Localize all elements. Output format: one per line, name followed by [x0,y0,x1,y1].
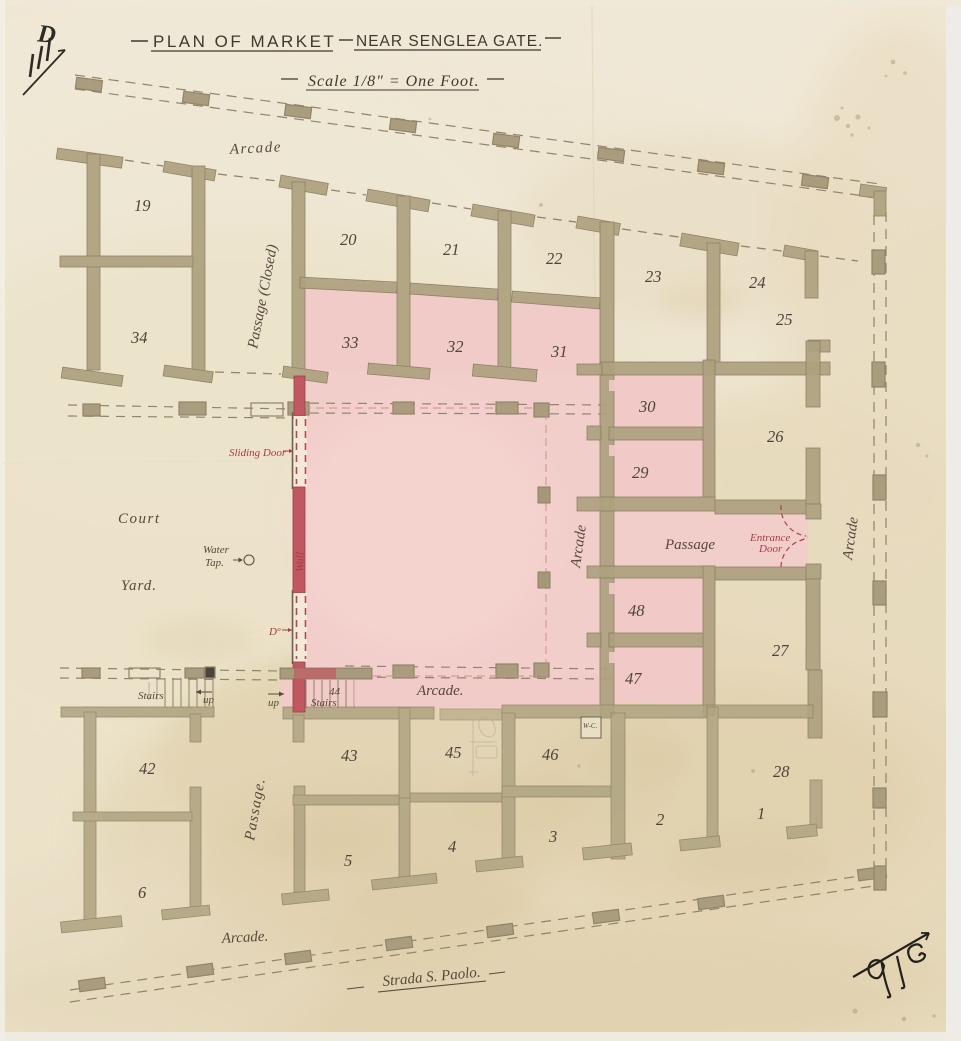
svg-text:33: 33 [341,333,359,352]
svg-text:NEAR SENGLEA GATE.: NEAR SENGLEA GATE. [356,33,543,50]
svg-text:3: 3 [548,827,557,846]
svg-text:42: 42 [139,759,156,778]
svg-text:21: 21 [443,240,460,259]
svg-text:24: 24 [749,273,766,292]
svg-text:Yard.: Yard. [121,578,157,594]
svg-text:5: 5 [344,851,352,870]
svg-text:47: 47 [625,669,642,688]
svg-text:23: 23 [645,267,662,286]
svg-text:46: 46 [542,745,559,764]
svg-text:26: 26 [767,427,784,446]
svg-text:Arcade.: Arcade. [220,929,268,947]
svg-text:27: 27 [772,641,789,660]
svg-text:43: 43 [341,746,358,765]
svg-text:D: D [35,20,57,49]
svg-text:Court: Court [118,511,161,527]
svg-text:W-C.: W-C. [583,722,598,730]
svg-text:25: 25 [776,310,793,329]
svg-text:1: 1 [757,804,765,823]
svg-text:Arcade: Arcade [228,139,282,158]
svg-text:2: 2 [656,810,664,829]
svg-text:Passage: Passage [664,537,715,553]
svg-text:Sliding Door: Sliding Door [229,447,287,459]
svg-text:34: 34 [130,328,148,347]
svg-text:30: 30 [638,397,656,416]
svg-text:20: 20 [340,230,357,249]
svg-text:6: 6 [138,883,147,902]
svg-text:up: up [203,694,215,706]
svg-text:45: 45 [445,743,462,762]
svg-text:48: 48 [628,601,645,620]
svg-text:Wall: Wall [294,552,307,572]
svg-text:up: up [268,697,280,709]
svg-text:4: 4 [448,837,456,856]
svg-text:Stairs: Stairs [311,697,337,709]
svg-text:Scale 1/8" = One Foot.: Scale 1/8" = One Foot. [308,73,479,90]
svg-text:Water: Water [203,544,230,556]
svg-text:Arcade.: Arcade. [416,683,464,699]
svg-text:29: 29 [632,463,649,482]
svg-text:Dº: Dº [268,626,281,638]
svg-text:Tap.: Tap. [205,557,224,569]
svg-text:31: 31 [550,342,568,361]
svg-text:28: 28 [773,762,790,781]
svg-text:PLAN OF MARKET: PLAN OF MARKET [153,32,336,51]
svg-text:Door: Door [758,543,783,555]
svg-text:32: 32 [446,337,464,356]
svg-text:22: 22 [546,249,563,268]
svg-text:Stairs: Stairs [138,690,164,702]
svg-text:19: 19 [134,196,151,215]
